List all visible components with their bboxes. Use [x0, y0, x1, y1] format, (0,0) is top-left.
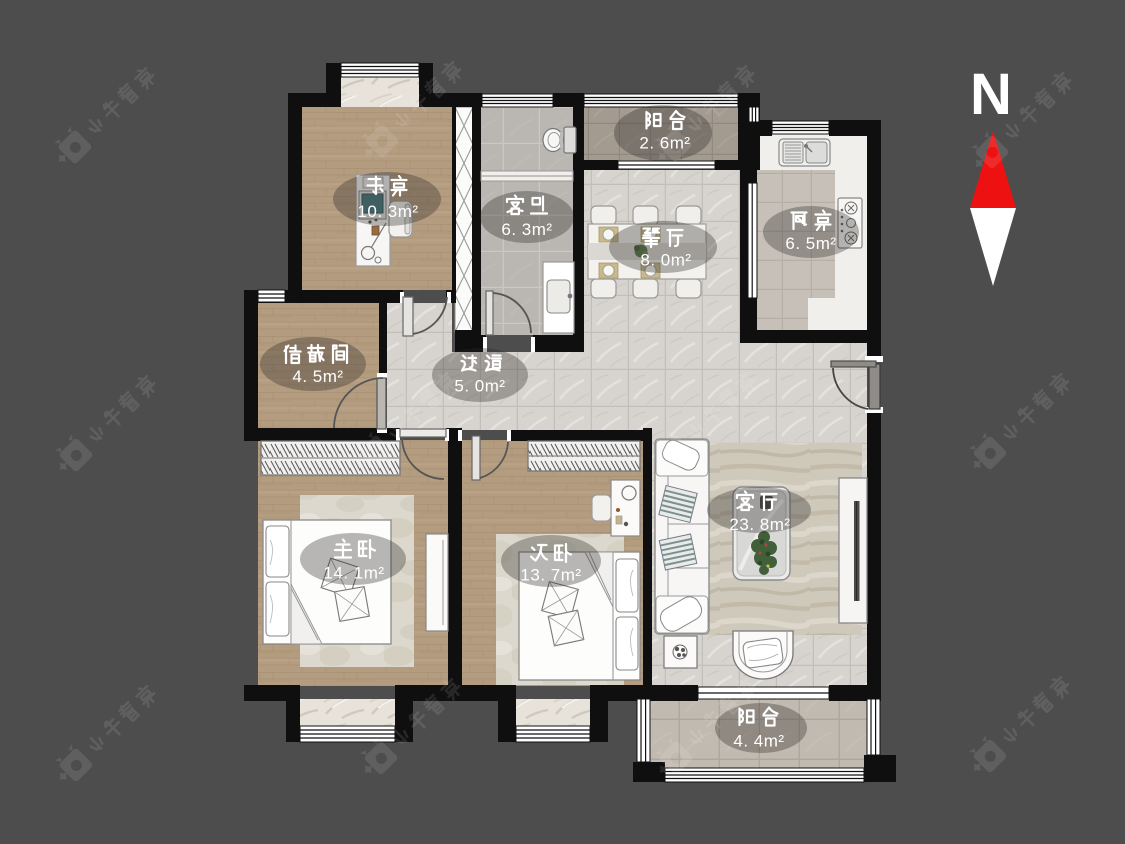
svg-text:N: N: [970, 62, 1012, 127]
svg-text:6. 5m²: 6. 5m²: [785, 234, 836, 253]
svg-text:4. 5m²: 4. 5m²: [292, 367, 343, 386]
svg-text:6. 3m²: 6. 3m²: [501, 220, 552, 239]
svg-text:14. 1m²: 14. 1m²: [323, 564, 384, 583]
svg-text:4. 4m²: 4. 4m²: [733, 732, 784, 751]
svg-text:10. 3m²: 10. 3m²: [357, 202, 418, 221]
svg-text:13. 7m²: 13. 7m²: [520, 566, 581, 585]
svg-text:23. 8m²: 23. 8m²: [729, 515, 790, 534]
svg-text:5. 0m²: 5. 0m²: [454, 377, 505, 396]
svg-text:8. 0m²: 8. 0m²: [640, 251, 691, 270]
